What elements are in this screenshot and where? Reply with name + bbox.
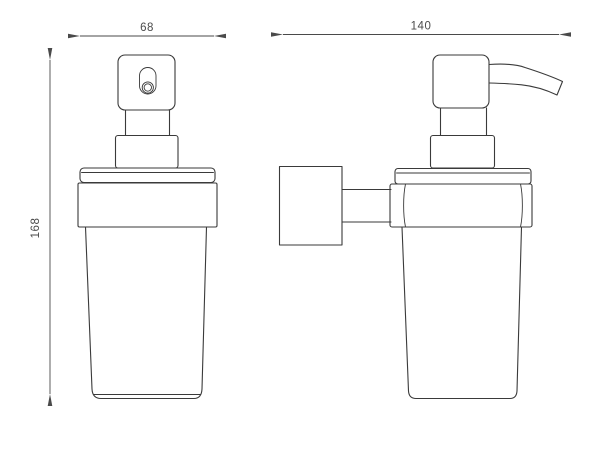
drawing-canvas: 68 140 168 — [0, 0, 600, 464]
front-pump-collar — [116, 136, 179, 169]
dimension-depth-label: 140 — [411, 21, 432, 33]
side-view — [280, 55, 563, 399]
side-holder-band-right-curve — [521, 184, 523, 227]
dimension-height-label: 168 — [30, 218, 42, 239]
side-bottle-rim — [395, 169, 531, 185]
technical-drawing: 68 140 168 — [0, 0, 600, 464]
front-glass-cup — [86, 227, 207, 399]
side-holder-band — [390, 184, 532, 227]
front-holder-band — [78, 183, 217, 227]
front-spout-slot — [140, 68, 157, 95]
front-spout-outlet-inner — [144, 84, 151, 91]
dimension-front-width: 68 — [80, 22, 214, 36]
side-spout — [489, 64, 563, 95]
side-pump-head — [433, 55, 489, 108]
side-wall-plate — [280, 167, 343, 246]
side-pump-collar — [431, 136, 495, 169]
dimension-width-label: 68 — [140, 22, 154, 34]
dimension-side-depth: 140 — [283, 21, 559, 35]
front-view — [78, 55, 217, 399]
front-bottle-rim — [80, 168, 215, 183]
side-glass-cup — [402, 227, 522, 399]
side-holder-band-left-curve — [404, 184, 406, 227]
dimension-height: 168 — [30, 60, 50, 394]
